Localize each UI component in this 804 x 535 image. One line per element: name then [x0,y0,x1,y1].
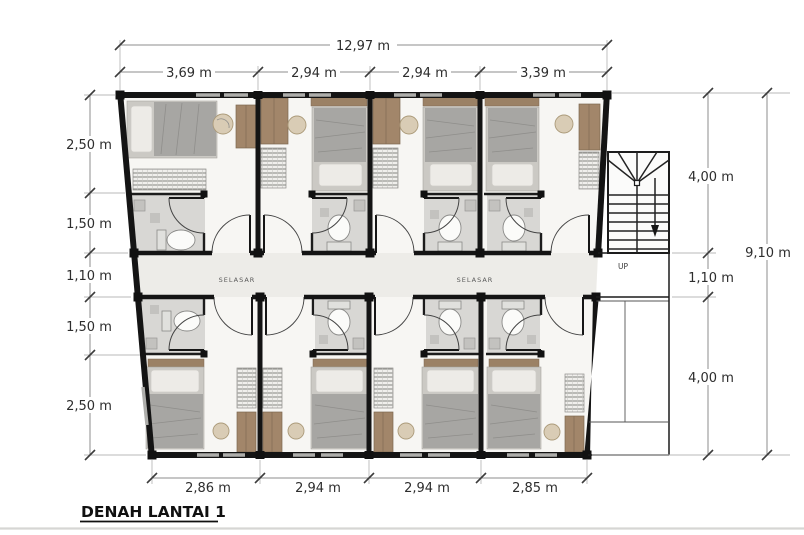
toilet [167,230,195,250]
pillow [492,370,536,392]
wardrobe [565,416,584,452]
washbasin [134,200,145,211]
washbasin [489,338,500,349]
dim-top-total: 12,97 m [336,39,390,54]
washbasin [489,200,500,211]
bath-tile [150,213,160,223]
toilet-tank [157,230,166,250]
pillow [492,164,533,186]
dim-left-segment-5: 2,50 m [66,399,112,414]
toilet [328,215,350,241]
washbasin [465,200,476,211]
dim-right-segment-2: 1,10 m [688,271,734,286]
staircase: UP [608,152,669,271]
wardrobe [263,412,282,452]
pillow [430,164,472,186]
rack [579,152,599,189]
dim-bottom-segment-4: 2,85 m [512,481,558,496]
washbasin [464,338,475,349]
bath-tile [319,335,328,344]
divider-wall [478,95,483,255]
chair [213,114,233,134]
rack [373,148,398,188]
dim-right-segment-3: 4,00 m [688,371,734,386]
bath-tile [430,335,439,344]
side-yard [588,253,669,455]
dim-right-segment-1: 4,00 m [688,170,734,185]
slippers [213,423,229,439]
chair [555,115,573,133]
toilet-tank [439,301,461,309]
dim-top-segment-3: 2,94 m [402,66,448,81]
chair [288,116,306,134]
toilet-tank [438,242,462,251]
dim-right-total: 9,10 m [745,246,791,261]
toilet-tank [327,242,351,251]
wardrobe [261,98,288,144]
dim-left-segment-1: 2,50 m [66,138,112,153]
page-title: DENAH LANTAI 1 [81,503,226,521]
dim-left-segment-2: 1,50 m [66,217,112,232]
pillow [427,370,474,392]
pillow [131,106,152,152]
dim-top-segment-2: 2,94 m [291,66,337,81]
floor-plan-page: UP SELASAR SELASAR [0,0,804,535]
wardrobe [237,412,256,452]
dim-top-segment-1: 3,69 m [166,66,212,81]
corridor-floor [134,253,598,297]
dim-bottom-segment-1: 2,86 m [185,481,231,496]
rack [565,374,584,412]
washbasin [354,200,365,211]
shoe-rack [133,169,206,190]
pillow [319,164,362,186]
toilet [439,309,461,335]
toilet-tank [502,301,524,309]
bath-tile [320,208,329,217]
divider-wall [256,95,261,255]
rack [237,368,256,408]
dim-left-segment-3: 1,10 m [66,269,112,284]
stairs-up-label: UP [618,262,628,271]
floor-plan-drawing: UP SELASAR SELASAR [0,0,804,535]
headboard [148,359,204,367]
toilet-tank [162,311,171,331]
wardrobe [373,98,400,144]
divider-wall [367,295,372,457]
toilet-tank [502,242,526,251]
toilet [503,215,525,241]
headboard [489,359,539,367]
bath-tile [430,210,439,219]
rack [261,148,286,188]
headboard [313,359,367,367]
divider-wall [368,95,373,255]
rack [263,368,282,408]
washbasin [353,338,364,349]
bath-tile [150,305,159,314]
corridor-label-left: SELASAR [219,276,256,284]
headboard [424,359,478,367]
slippers [288,423,304,439]
rack [374,368,393,408]
wardrobe [579,104,600,150]
bath-tile [524,208,533,217]
toilet-tank [328,301,350,309]
divider-wall [258,295,263,457]
slippers [398,423,414,439]
dim-left-segment-4: 1,50 m [66,320,112,335]
divider-wall [479,295,484,457]
pillow [316,370,363,392]
chair [400,116,418,134]
wardrobe [374,412,393,452]
slippers [544,424,560,440]
corridor-label-right: SELASAR [457,276,494,284]
stair-newel [635,181,640,186]
toilet [328,309,350,335]
washbasin [146,338,157,349]
dim-bottom-segment-3: 2,94 m [404,481,450,496]
bath-tile [527,335,536,344]
pillow [151,370,199,392]
dim-top-segment-4: 3,39 m [520,66,566,81]
toilet [174,311,200,331]
dim-bottom-segment-2: 2,94 m [295,481,341,496]
